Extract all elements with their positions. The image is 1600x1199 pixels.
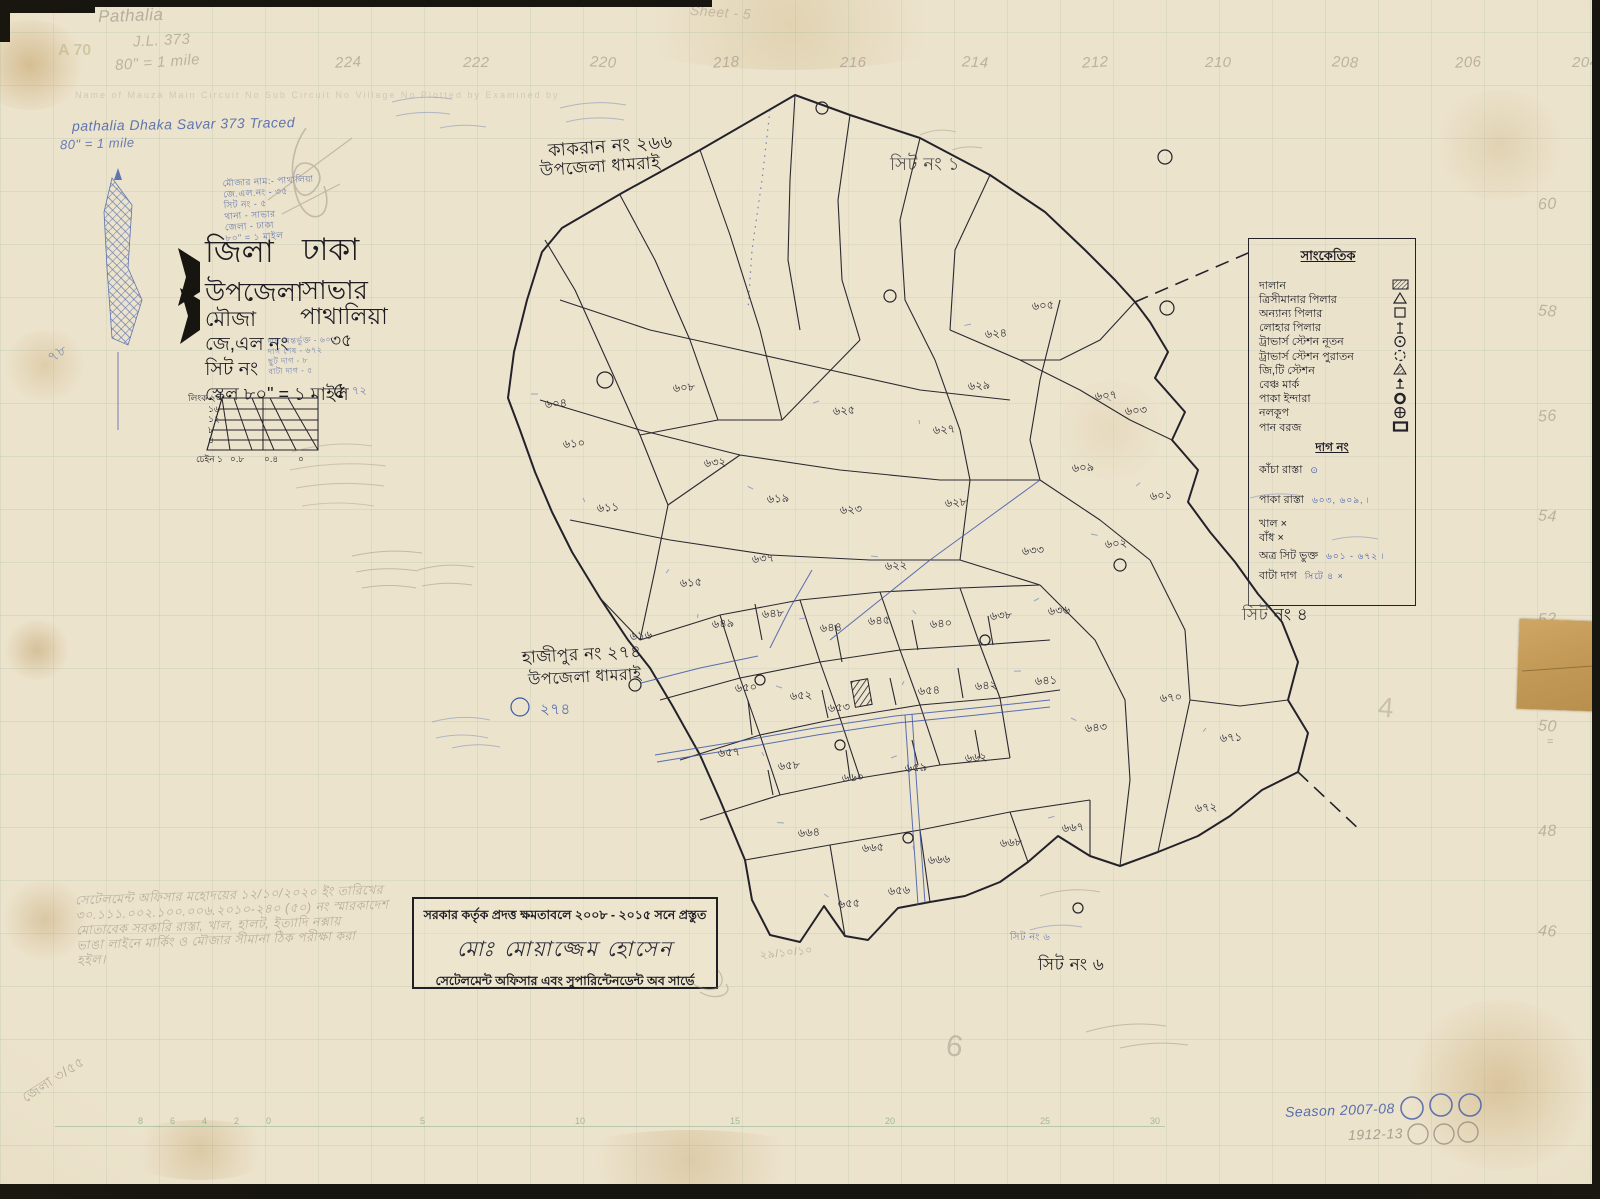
plot-number: ৬১৬ — [629, 629, 653, 643]
plot-number: ৬৫২ — [789, 689, 812, 703]
plot-number: ৬৪৫ — [867, 614, 890, 628]
plot-number: ৬৩৬ — [1047, 604, 1071, 618]
station-circle — [1073, 903, 1083, 913]
plot-number: ৬৪২ — [974, 679, 997, 693]
station-circle — [511, 698, 529, 716]
plot-number: ৬৬৬ — [927, 853, 951, 867]
scan-edge-top-left — [0, 0, 95, 13]
scan-edge-left — [0, 0, 10, 42]
plot-number: ৬৫৫ — [837, 897, 860, 911]
plot-number: ৬৬৪ — [797, 826, 820, 840]
station-circle — [629, 679, 641, 691]
scan-edge-bottom — [0, 1184, 1600, 1199]
plot-number: ৬২৮ — [944, 496, 968, 510]
plot-number: ৬২৫ — [832, 404, 855, 418]
plot-number: ৬৪০ — [929, 617, 952, 631]
plot-number: ৬৫৬ — [887, 884, 911, 898]
plot-number: ৬৭০ — [1159, 691, 1182, 705]
plot-number: ৬০১ — [1149, 489, 1172, 503]
blue-canal-sketch — [104, 168, 142, 430]
plot-number: ৬৪১ — [1034, 674, 1057, 688]
plot-number: ৬৪৯ — [711, 617, 734, 631]
plot-number: ৬৫৮ — [777, 759, 801, 773]
plot-number: ৬০৭ — [1094, 389, 1117, 403]
plot-number: ৬৬৮ — [999, 836, 1023, 850]
plot-number: ৬৩২ — [703, 456, 726, 470]
plot-number: ৬৪৪ — [819, 621, 842, 635]
plot-number: ৬২৭ — [932, 423, 955, 437]
plot-number: ৬৭১ — [1219, 731, 1242, 745]
tape-patch — [1516, 619, 1595, 712]
plot-number: ৬৩৭ — [751, 552, 774, 566]
plot-number: ৬০৪ — [544, 397, 567, 411]
plot-number: ৬৩৩ — [1021, 544, 1045, 558]
plot-number: ৬৫৯ — [904, 761, 927, 775]
plot-number: ৬০৩ — [1124, 404, 1148, 418]
plot-number: ৬১৫ — [679, 576, 702, 590]
plot-number: ৬০৯ — [1071, 461, 1094, 475]
plot-number: ৬২৪ — [984, 327, 1007, 341]
station-circle — [1160, 301, 1174, 315]
plot-number: ৬২৯ — [967, 379, 990, 393]
plot-number: ৬০২ — [1104, 537, 1127, 551]
plot-number: ৬৫৭ — [717, 746, 740, 760]
scanned-mouza-map-sheet: Name of Mauza Main Circuit No Sub Circui… — [0, 0, 1600, 1199]
plot-number: ৬৬২ — [964, 751, 987, 765]
scan-edge-top — [0, 0, 712, 7]
fold-wedge-marks — [178, 248, 200, 344]
plot-number: ৬১০ — [562, 437, 585, 451]
plot-number: ৬২৩ — [839, 503, 863, 517]
plot-number: ৬৩৮ — [989, 609, 1013, 623]
plot-number: ৬৫৪ — [917, 684, 940, 698]
map-linework: ৬০৪৬১০৬১১৬০৮৬২৫৬৩২৬১৯৬২৩৬১৫৬৩৭৬২২৬২৮৬২৭৬… — [0, 0, 1600, 1199]
plot-number: ৬২২ — [884, 559, 907, 573]
plot-number: ৬০৮ — [672, 381, 696, 395]
plot-number: ৬০৫ — [1031, 299, 1054, 313]
plot-number: ৬৬৭ — [1061, 821, 1084, 835]
plot-number: ৬৬০ — [841, 771, 864, 785]
plot-number: ৬৫০ — [734, 681, 757, 695]
scan-edge-right — [1592, 0, 1600, 1199]
plot-number: ৬১৯ — [766, 492, 789, 506]
plot-number: ৬১১ — [596, 501, 619, 515]
plot-number: ৬৬৫ — [861, 841, 884, 855]
station-circle — [1158, 150, 1172, 164]
scale-diagram-grid — [207, 398, 318, 450]
plot-number: ৬৭২ — [1194, 801, 1217, 815]
plot-number: ৬৪৮ — [761, 607, 785, 621]
plot-number: ৬৪৩ — [1084, 721, 1108, 735]
plot-number: ৬৫৩ — [827, 701, 851, 715]
season-circles — [1401, 1094, 1481, 1144]
